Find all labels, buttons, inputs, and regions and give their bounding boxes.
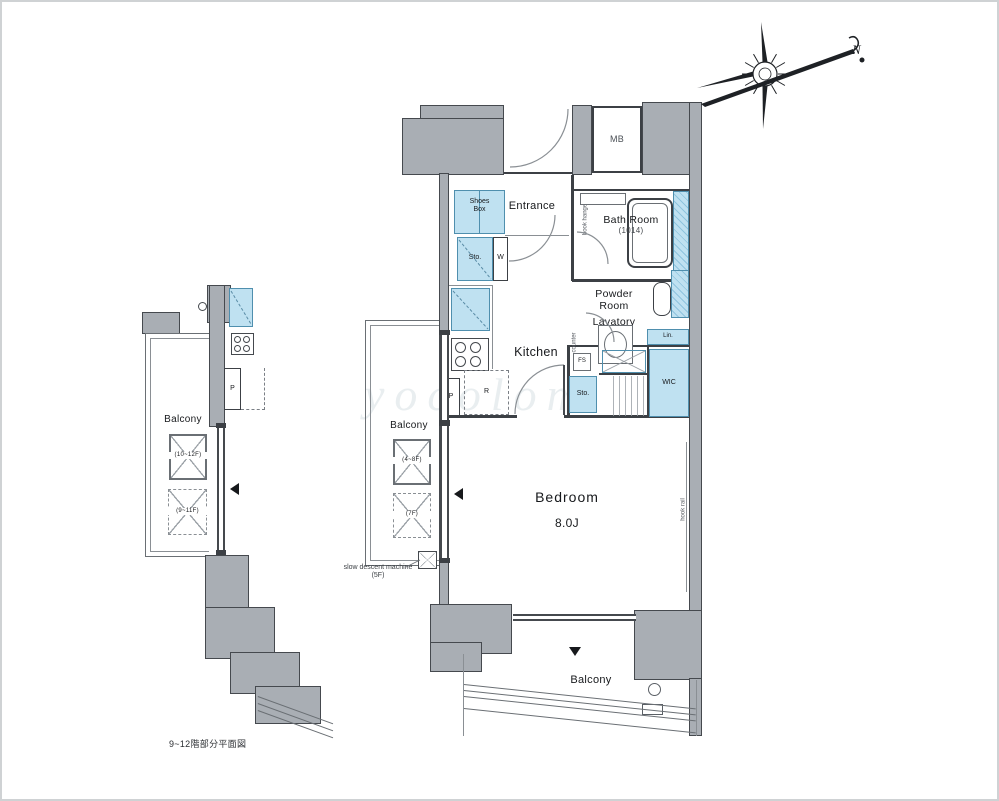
wall-bath-top [574,189,689,191]
kitchen-counter-edge [492,285,493,369]
storage-bedroom-label: Sto. [569,390,597,398]
stove-burner-1 [455,342,466,353]
bedroom-window-left [440,426,449,559]
hall-door-arc [509,215,555,261]
stove-burner-4 [470,356,481,367]
compass-needle-dot [860,58,865,63]
fragment-dashed-edge [241,368,265,410]
bedroom-window-bottom [513,614,636,621]
bottom-balcony-label: Balcony [558,674,624,687]
north-label: N [851,42,862,57]
bath-size-label: (1014) [586,226,676,235]
kitchen-window [440,334,449,422]
fragment-pipe-space-label: P [224,385,241,393]
balcony-left-edge [463,654,464,736]
fragment-door-handle [198,302,207,311]
balcony-drain [648,683,661,696]
window-jamb-2 [439,420,450,426]
fragment-bar [142,312,180,334]
fragment-window-jamb-1 [216,423,226,428]
fragment-step-1 [205,555,249,613]
compass-spike-down [763,86,768,129]
fridge-label: R [464,388,509,396]
bedroom-label: Bedroom [517,489,617,505]
balcony-access-marker [569,647,581,656]
closet-hatch-area [608,376,646,416]
hook-rail-wrap: hook rail [670,482,696,538]
wic-label: WIC [649,379,689,387]
w-closet-label: W [493,254,508,262]
slow-descent-note: slow descent machine (5F) [314,564,442,580]
toilet-wall-panel [671,270,689,318]
fragment-burner-4 [243,345,250,352]
compass-spike-left [697,72,753,89]
stove-burner-3 [455,356,466,367]
fragment-hatch-upper-label: (10~12F) [168,452,208,459]
bedroom-size-label: 8.0J [517,517,617,531]
wall-closet-mid [599,373,647,375]
left-arrow-marker-fragment [230,483,239,495]
side-balcony-label: Balcony [380,420,438,432]
meter-box-label: MB [602,134,632,144]
kitchen-label: Kitchen [500,345,572,359]
kitchen-sink [451,288,490,331]
kitchen-counter-top [449,285,492,286]
plan-caption: 9~12階部分平面図 [169,739,309,749]
window-jamb-1 [439,330,450,335]
floorplan-page: yocolom MB Shoes Box Entrance hook hange… [0,0,999,801]
compass-needle [701,49,855,107]
powder-room-label: Powder Room [580,288,648,312]
fragment-burner-3 [234,345,241,352]
stove-burner-2 [470,342,481,353]
fragment-balcony-label: Balcony [154,414,212,426]
hook-rail-line [686,442,687,592]
bath-label: Bath Room [586,214,676,226]
side-balcony-hatch-lower-label: (7F) [393,511,431,518]
washer-pan [602,350,646,373]
bath-counter [580,193,626,205]
fragment-burner-1 [234,336,241,343]
compass-icon [697,22,865,129]
storage-hall-label: Sto. [457,254,493,262]
entrance-threshold [505,235,569,236]
compass-spikes [742,51,788,97]
wall-bottom-left-step [430,642,482,672]
wall-bottom-right-block [634,610,702,680]
balcony-right-edge [696,680,697,736]
fragment-hatch-lower-label: (9~11F) [168,508,207,515]
wall-entrance-pillar [572,105,592,175]
fs-label: FS [573,358,591,365]
linen-label: Lin. [647,333,689,340]
fragment-sink [229,288,253,327]
fragment-wall [209,285,225,427]
side-balcony-hatch-upper-label: (4~8F) [393,457,431,464]
left-arrow-marker-main [454,488,463,500]
fragment-burner-2 [243,336,250,343]
compass-needle-tip [849,37,858,51]
fragment-window [217,427,225,551]
front-door-threshold [504,172,572,174]
wall-top-left-block [402,118,504,175]
window-jamb-3 [439,558,450,563]
compass-spike-up [761,22,768,62]
front-door-arc [510,109,568,167]
toilet [653,282,671,316]
